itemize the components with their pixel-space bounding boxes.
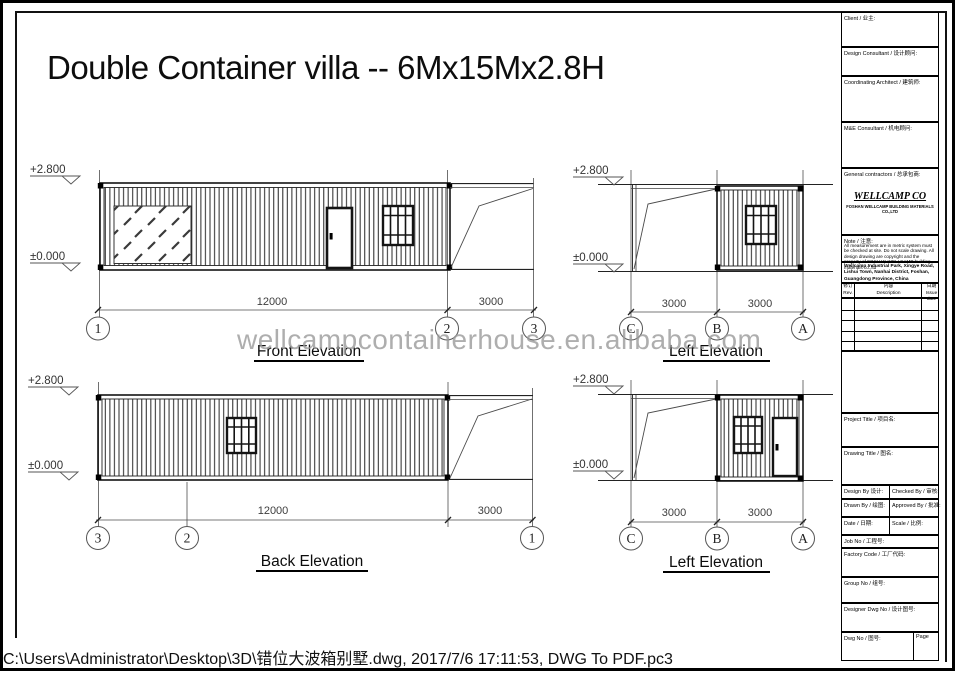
- dim-left-bot-2: 3000: [748, 507, 772, 519]
- titleblock-me-consultant-box: M&E Consultant / 机电顾问:: [841, 122, 939, 168]
- back-elevation-drawing: 12000 3000 3 2 1 Back Elevation +2.800 ±…: [28, 375, 544, 571]
- level-top: +2.800: [28, 375, 64, 387]
- coordinating-architect-label: Coordinating Architect / 建筑师:: [844, 78, 920, 86]
- titleblock-date-scale-row: Date / 日期: Scale / 比例:: [841, 517, 939, 535]
- address-line: Lishui Town, Nanhai District, Foshan,: [844, 270, 938, 276]
- titleblock-drawing-title-box: Drawing Title / 图名:: [841, 447, 939, 485]
- left-elevation-bottom-drawing: 3000 3000 C B A Left Elevation +2.800 ±0…: [573, 374, 833, 572]
- rev-row-line: [842, 310, 938, 311]
- scale-label: Scale / 比例:: [892, 519, 923, 527]
- dim-left-top-2: 3000: [748, 298, 772, 310]
- grid-bubble: 1: [95, 321, 102, 336]
- titleblock-dwg-no-page-row: Dwg No / 图号: Page: [841, 632, 939, 661]
- sheet-frame-top: [15, 11, 946, 13]
- grid-bubble: C: [626, 531, 635, 546]
- back-elevation-label: Back Elevation: [261, 553, 364, 570]
- titleblock-note-box: Note / 注意: All measurement are in metric…: [841, 235, 939, 262]
- general-contractors-label: General contractors / 总承包商:: [844, 170, 920, 178]
- page-cell: Page: [913, 633, 940, 660]
- level-ground: ±0.000: [573, 459, 608, 471]
- titleblock-empty-box: [841, 351, 939, 413]
- drawn-by-label: Drawn By / 绘图:: [844, 501, 885, 509]
- approved-by-cell: Approved By / 批准:: [889, 500, 940, 516]
- rev-row-line: [842, 341, 938, 342]
- title-block: Client / 业主: Design Consultant / 设计顾问: C…: [841, 12, 939, 661]
- grid-bubble: A: [798, 321, 808, 336]
- canopy: [631, 395, 717, 480]
- alibaba-watermark: wellcampcontainerhouse.en.alibaba.com: [237, 324, 761, 356]
- description-col-header: 内容 Description: [854, 284, 922, 297]
- scale-cell: Scale / 比例:: [889, 518, 940, 534]
- sheet-frame-right: [945, 11, 947, 662]
- level-top: +2.800: [573, 374, 609, 386]
- titleblock-designby-checkedby-row: Design By 设计: Checked By / 审核:: [841, 485, 939, 499]
- design-by-label: Design By 设计:: [844, 487, 883, 495]
- design-consultant-label: Design Consultant / 设计顾问:: [844, 49, 917, 57]
- me-consultant-label: M&E Consultant / 机电顾问:: [844, 124, 912, 132]
- titleblock-group-no-box: Group No / 组号:: [841, 577, 939, 603]
- company-name: WELLCAMP CO: [842, 191, 938, 202]
- grid-bubble: 3: [95, 531, 102, 546]
- window: [383, 206, 413, 245]
- rev-cn: 修订: [842, 284, 854, 291]
- approved-by-label: Approved By / 批准:: [892, 501, 941, 509]
- canopy: [450, 184, 534, 270]
- sheet-frame-left: [15, 11, 17, 638]
- designer-dwg-no-label: Designer Dwg No / 设计图号:: [844, 605, 915, 613]
- grid-bubble: 2: [184, 531, 191, 546]
- level-ground: ±0.000: [30, 251, 65, 263]
- level-ground: ±0.000: [573, 252, 608, 264]
- titleblock-coordinating-architect-box: Coordinating Architect / 建筑师:: [841, 76, 939, 122]
- plot-stamp-path: C:\Users\Administrator\Desktop\3D\错位大波箱别…: [3, 645, 673, 669]
- job-no-label: Job No / 工程号:: [844, 537, 884, 545]
- revision-table-rows: [841, 298, 939, 351]
- level-ground: ±0.000: [28, 460, 63, 472]
- rev-en: Rev.: [842, 291, 854, 298]
- dim-left-top-1: 3000: [662, 298, 686, 310]
- cad-sheet: 12000 3000 1 2 3 Front Elevation +2.800 …: [0, 0, 957, 678]
- dim-left-bot-1: 3000: [662, 507, 686, 519]
- window: [734, 417, 762, 453]
- checked-by-label: Checked By / 审核:: [892, 487, 939, 495]
- rev-row-line: [842, 320, 938, 321]
- date-label: Date / 日期:: [844, 519, 873, 527]
- drawing-sheet-title: Double Container villa -- 6Mx15Mx2.8H: [47, 49, 604, 87]
- issue-date-col-header: 日期 Issue date: [921, 284, 941, 297]
- drawing-title-label: Drawing Title / 图名:: [844, 449, 893, 457]
- dim-back-main: 12000: [258, 505, 289, 517]
- titleblock-client-box: Client / 业主:: [841, 12, 939, 47]
- company-subline: FOSHAN WELLCAMP BUILDING MATERIALS CO.,L…: [844, 204, 935, 214]
- factory-code-label: Factory Code / 工厂代码:: [844, 550, 905, 558]
- level-top: +2.800: [573, 165, 609, 177]
- grid-bubble: 1: [529, 531, 536, 546]
- titleblock-project-title-box: Project Title / 项目名:: [841, 413, 939, 447]
- door: [773, 418, 797, 476]
- titleblock-general-contractors-box: General contractors / 总承包商: WELLCAMP CO …: [841, 168, 939, 235]
- window: [746, 206, 776, 244]
- desc-en: Description: [855, 291, 922, 298]
- canopy: [631, 185, 717, 271]
- group-no-label: Group No / 组号:: [844, 579, 885, 587]
- titleblock-address-box: Wellcamp Industrial Park, Xingye Road, L…: [841, 262, 939, 283]
- company-address: Wellcamp Industrial Park, Xingye Road, L…: [844, 264, 938, 283]
- canopy: [448, 396, 533, 480]
- titleblock-job-no-box: Job No / 工程号:: [841, 535, 939, 548]
- grid-bubble: B: [712, 531, 721, 546]
- dim-front-main: 12000: [257, 296, 288, 308]
- dim-back-ext: 3000: [478, 505, 502, 517]
- client-label: Client / 业主:: [844, 14, 875, 22]
- checked-by-cell: Checked By / 审核:: [889, 486, 940, 498]
- project-title-label: Project Title / 项目名:: [844, 415, 895, 423]
- glass-panel: [114, 206, 191, 264]
- grid-bubble: A: [798, 531, 808, 546]
- titleblock-factory-code-box: Factory Code / 工厂代码:: [841, 548, 939, 577]
- window: [227, 418, 256, 453]
- dwg-no-label: Dwg No / 图号:: [844, 634, 881, 642]
- dim-front-ext: 3000: [479, 296, 503, 308]
- rev-col-header: 修订 Rev.: [842, 284, 854, 297]
- rev-row-line: [842, 331, 938, 332]
- left-elevation-bottom-label: Left Elevation: [669, 554, 763, 571]
- page-label: Page: [916, 634, 929, 640]
- titleblock-design-consultant-box: Design Consultant / 设计顾问:: [841, 47, 939, 76]
- door: [327, 208, 352, 268]
- level-top: +2.800: [30, 164, 66, 176]
- titleblock-designer-dwg-no-box: Designer Dwg No / 设计图号:: [841, 603, 939, 632]
- titleblock-drawnby-approvedby-row: Drawn By / 绘图: Approved By / 批准:: [841, 499, 939, 517]
- revision-table-header: 修订 Rev. 内容 Description 日期 Issue date: [841, 283, 939, 298]
